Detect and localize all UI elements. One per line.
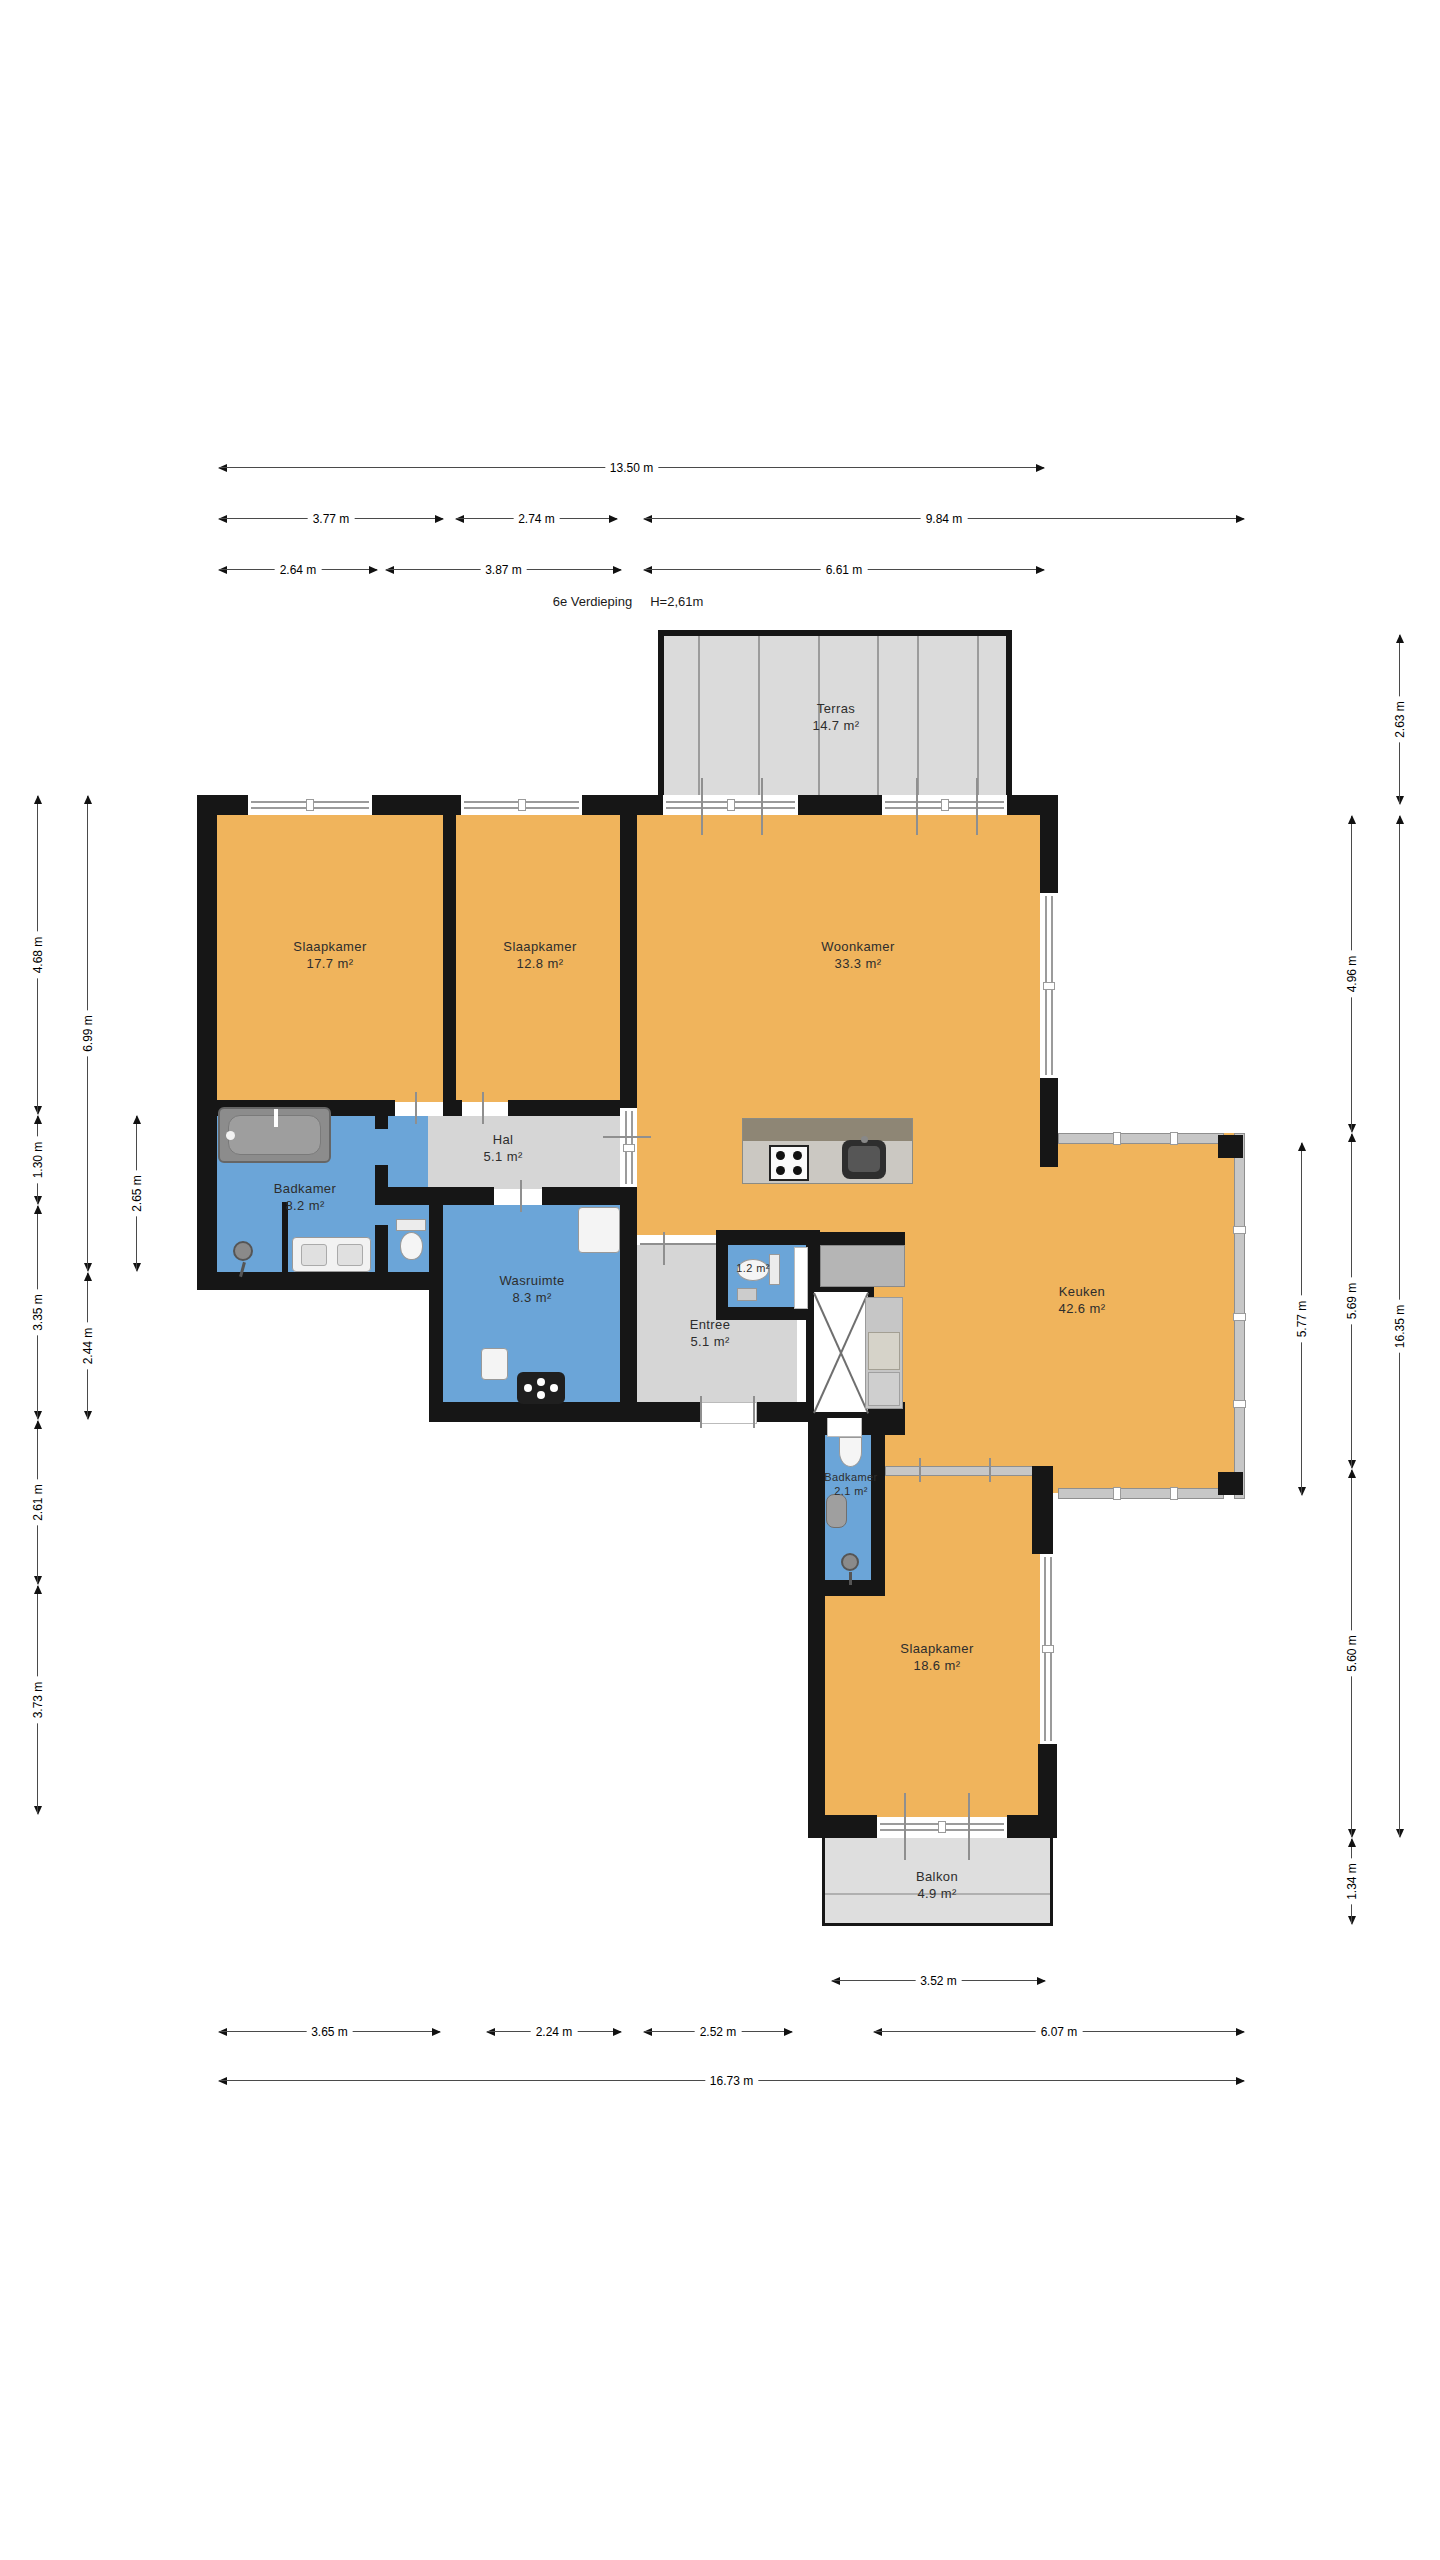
- arrowhead: [1348, 1469, 1356, 1478]
- wall: [375, 1115, 388, 1129]
- room-label-badkamer-2: Badkamer2.1 m²: [801, 1470, 901, 1498]
- dimension-line-24: 5.60 m: [1345, 1469, 1359, 1838]
- arrowhead: [613, 2028, 622, 2036]
- dimension-line-22: 4.96 m: [1345, 815, 1359, 1133]
- door-swing-tick: [603, 1136, 651, 1138]
- dimension-value: 16.35 m: [1393, 1300, 1407, 1353]
- dimension-value: 2.44 m: [81, 1323, 95, 1370]
- dimension-value: 3.35 m: [31, 1289, 45, 1336]
- wall: [1218, 1135, 1243, 1158]
- dimension-line-20: 2.65 m: [130, 1115, 144, 1272]
- arrowhead: [34, 1576, 42, 1585]
- arrowhead: [1037, 1977, 1046, 1985]
- arrowhead: [1348, 1460, 1356, 1469]
- dimension-line-11: 6.07 m: [873, 2025, 1245, 2039]
- arrowhead: [34, 1585, 42, 1594]
- dimension-value: 2.65 m: [130, 1170, 144, 1217]
- door-swing-tick: [976, 778, 978, 835]
- wall: [808, 1420, 827, 1435]
- arrowhead: [1396, 1829, 1404, 1838]
- dimension-line-12: 16.73 m: [218, 2074, 1245, 2088]
- wall: [443, 1100, 462, 1116]
- arrowhead: [1348, 1124, 1356, 1133]
- dimension-value: 2.74 m: [513, 512, 560, 526]
- burner: [776, 1151, 785, 1160]
- arrowhead: [34, 1205, 42, 1214]
- door-swing-tick: [919, 1458, 921, 1482]
- dimension-value: 2.61 m: [31, 1479, 45, 1526]
- dimension-value: 6.61 m: [821, 563, 868, 577]
- dimension-value: 2.52 m: [695, 2025, 742, 2039]
- arrowhead: [486, 2028, 495, 2036]
- washer-dial: [550, 1384, 558, 1392]
- arrowhead: [1236, 2077, 1245, 2085]
- dimension-value: 1.34 m: [1345, 1858, 1359, 1905]
- wall: [808, 1580, 885, 1596]
- arrowhead: [1348, 1916, 1356, 1925]
- wall: [808, 1815, 877, 1838]
- arrowhead: [643, 2028, 652, 2036]
- dimension-line-23: 5.69 m: [1345, 1133, 1359, 1469]
- room-label-slaapkamer-3: Slaapkamer18.6 m²: [877, 1640, 997, 1674]
- arrowhead: [1236, 2028, 1245, 2036]
- arrowhead: [218, 515, 227, 523]
- window-icon: [248, 795, 372, 815]
- dimension-line-26: 5.77 m: [1295, 1142, 1309, 1496]
- door-opening: [700, 1402, 757, 1424]
- arrowhead: [84, 795, 92, 804]
- glass-mullion: [1170, 1487, 1178, 1500]
- dimension-value: 2.63 m: [1393, 696, 1407, 743]
- wall: [429, 1205, 443, 1420]
- dimension-line-3: 9.84 m: [643, 512, 1245, 526]
- bathtub-icon: [218, 1107, 331, 1163]
- toilet-icon: [396, 1219, 426, 1231]
- door-swing-tick: [700, 1396, 702, 1428]
- dimension-line-0: 13.50 m: [218, 461, 1045, 475]
- door-opening: [794, 1247, 808, 1309]
- dimension-line-16: 2.61 m: [31, 1420, 45, 1585]
- wall: [1032, 1466, 1053, 1554]
- wall: [806, 1232, 905, 1245]
- floorplan-title: 6e Verdieping H=2,61m: [438, 594, 818, 609]
- window-icon: [1040, 1554, 1056, 1744]
- glass-mullion: [1170, 1132, 1178, 1145]
- glass-mullion: [1113, 1487, 1121, 1500]
- wall: [716, 1230, 810, 1245]
- arrowhead: [455, 515, 464, 523]
- sink-icon: [737, 1288, 757, 1301]
- dimension-line-19: 2.44 m: [81, 1272, 95, 1420]
- dimension-line-9: 2.24 m: [486, 2025, 622, 2039]
- room-label-keuken: Keuken42.6 m²: [1022, 1283, 1142, 1317]
- arrowhead: [432, 2028, 441, 2036]
- toilet-bowl: [400, 1232, 423, 1260]
- arrowhead: [1236, 515, 1245, 523]
- door-swing-tick: [701, 778, 703, 835]
- wall: [1040, 815, 1058, 895]
- wall: [1007, 795, 1058, 815]
- glass-wall: [885, 1466, 1034, 1476]
- sink-basin: [337, 1244, 363, 1266]
- arrowhead: [34, 1420, 42, 1429]
- wall: [1040, 1078, 1058, 1167]
- dimension-line-6: 6.61 m: [643, 563, 1045, 577]
- arrowhead: [34, 1106, 42, 1115]
- arrowhead: [34, 795, 42, 804]
- dimension-line-21: 2.63 m: [1393, 634, 1407, 805]
- dimension-value: 3.52 m: [915, 1974, 962, 1988]
- arrowhead: [84, 1263, 92, 1272]
- wall: [1218, 1472, 1243, 1495]
- wall: [798, 795, 882, 815]
- glass-mullion: [1233, 1400, 1246, 1408]
- arrowhead: [1348, 1133, 1356, 1142]
- dimension-value: 6.07 m: [1036, 2025, 1083, 2039]
- terras-divider: [917, 636, 919, 801]
- dimension-line-25: 1.34 m: [1345, 1838, 1359, 1925]
- washer-dial: [537, 1378, 545, 1386]
- ceiling-height-label: H=2,61m: [650, 594, 703, 609]
- wall: [375, 1225, 388, 1272]
- arrowhead: [1396, 796, 1404, 805]
- window-icon: [1040, 893, 1058, 1078]
- glass-mullion: [1233, 1226, 1246, 1234]
- arrowhead: [218, 2077, 227, 2085]
- arrowhead: [613, 566, 622, 574]
- arrowhead: [435, 515, 444, 523]
- terras-divider: [977, 636, 979, 801]
- kitchen-counter: [820, 1245, 905, 1287]
- dimension-line-15: 3.35 m: [31, 1205, 45, 1420]
- cabinet-icon: [578, 1207, 620, 1253]
- room-label-slaapkamer-2: Slaapkamer12.8 m²: [480, 938, 600, 972]
- door-swing-tick: [482, 1092, 484, 1124]
- arrowhead: [1348, 1838, 1356, 1847]
- arrowhead: [643, 515, 652, 523]
- arrowhead: [1348, 1829, 1356, 1838]
- door-swing-tick: [640, 1243, 716, 1245]
- door-swing-tick: [916, 778, 918, 835]
- arrowhead: [218, 2028, 227, 2036]
- wall: [375, 1165, 388, 1187]
- arrowhead: [34, 1115, 42, 1124]
- room-slaapkamer-3: [825, 1588, 1053, 1817]
- sink-basin: [848, 1146, 880, 1172]
- room-label-balkon: Balkon4.9 m²: [877, 1868, 997, 1902]
- kitchen-sink-icon: [842, 1140, 886, 1179]
- kitchen-island: [742, 1118, 913, 1184]
- terras-divider: [758, 636, 760, 801]
- dimension-line-13: 4.68 m: [31, 795, 45, 1115]
- room-label-badkamer-1: Badkamer8.2 m²: [245, 1180, 365, 1214]
- dimension-value: 3.73 m: [31, 1677, 45, 1724]
- arrowhead: [218, 464, 227, 472]
- wall: [429, 1402, 700, 1422]
- dimension-line-4: 2.64 m: [218, 563, 378, 577]
- dimension-value: 9.84 m: [921, 512, 968, 526]
- floor-label: 6e Verdieping: [553, 594, 633, 609]
- window-icon: [877, 1817, 1007, 1836]
- door-swing-tick: [761, 778, 763, 835]
- cabinet-icon: [481, 1348, 508, 1380]
- arrowhead: [784, 2028, 793, 2036]
- door-swing-tick: [663, 1232, 665, 1265]
- door-swing-tick: [520, 1180, 522, 1212]
- glass-mullion: [1233, 1313, 1246, 1321]
- wall: [375, 1187, 494, 1205]
- floorplan-canvas: 6e Verdieping H=2,61m: [0, 0, 1440, 2560]
- burner: [776, 1166, 785, 1175]
- room-label-slaapkamer-1: Slaapkamer17.7 m²: [270, 938, 390, 972]
- arrowhead: [1396, 815, 1404, 824]
- arrowhead: [1036, 566, 1045, 574]
- door-swing-tick: [753, 1396, 755, 1428]
- arrowhead: [609, 515, 618, 523]
- appliance-icon: [868, 1372, 900, 1406]
- terras-divider: [698, 636, 700, 801]
- faucet: [861, 1136, 868, 1143]
- glass-wall: [1058, 1488, 1224, 1499]
- room-label-wasruimte: Wasruimte8.3 m²: [472, 1272, 592, 1306]
- wall: [197, 795, 217, 1290]
- dimension-line-5: 3.87 m: [385, 563, 622, 577]
- arrowhead: [133, 1115, 141, 1124]
- arrowhead: [34, 1411, 42, 1420]
- arrowhead: [873, 2028, 882, 2036]
- shower-icon: [233, 1241, 253, 1261]
- window-icon: [663, 795, 798, 815]
- room-label-entree: Entree5.1 m²: [650, 1316, 770, 1350]
- room-label-toilet: 1.2 m²: [713, 1261, 793, 1275]
- bath-handle: [274, 1109, 278, 1127]
- dimension-value: 4.68 m: [31, 932, 45, 979]
- wall: [620, 795, 637, 1108]
- dimension-value: 5.69 m: [1345, 1278, 1359, 1325]
- glass-wall: [1058, 1133, 1224, 1144]
- toilet-icon: [839, 1437, 862, 1467]
- arrowhead: [34, 1806, 42, 1815]
- window-icon: [882, 795, 1007, 815]
- dimension-value: 13.50 m: [605, 461, 658, 475]
- arrowhead: [385, 566, 394, 574]
- glass-mullion: [1113, 1132, 1121, 1145]
- sink-icon: [826, 1494, 847, 1528]
- arrowhead: [1298, 1487, 1306, 1496]
- shower-arm: [849, 1572, 852, 1585]
- wall: [542, 1187, 620, 1205]
- arrowhead: [84, 1272, 92, 1281]
- dimension-line-27: 16.35 m: [1393, 815, 1407, 1838]
- dimension-line-8: 3.65 m: [218, 2025, 441, 2039]
- dimension-value: 3.77 m: [308, 512, 355, 526]
- dimension-value: 2.24 m: [531, 2025, 578, 2039]
- dimension-value: 3.87 m: [480, 563, 527, 577]
- vanity-double-sink-icon: [292, 1237, 371, 1272]
- wall: [508, 1100, 637, 1116]
- dimension-value: 5.77 m: [1295, 1296, 1309, 1343]
- arrowhead: [34, 1196, 42, 1205]
- arrowhead: [1036, 464, 1045, 472]
- burner: [793, 1151, 802, 1160]
- dimension-line-10: 2.52 m: [643, 2025, 793, 2039]
- window-icon: [620, 1108, 637, 1187]
- wall: [1007, 1815, 1057, 1838]
- door-swing-tick: [415, 1092, 417, 1124]
- room-label-hal: Hal5.1 m²: [443, 1131, 563, 1165]
- dimension-line-2: 2.74 m: [455, 512, 618, 526]
- arrowhead: [831, 1977, 840, 1985]
- wall: [197, 1272, 443, 1290]
- wall: [871, 1420, 885, 1585]
- arrowhead: [369, 566, 378, 574]
- dimension-value: 16.73 m: [705, 2074, 758, 2088]
- dimension-line-1: 3.77 m: [218, 512, 444, 526]
- window-icon: [461, 795, 582, 815]
- door-swing-tick: [968, 1793, 970, 1860]
- arrowhead: [84, 1411, 92, 1420]
- washer-dial: [537, 1391, 545, 1399]
- dimension-value: 3.65 m: [306, 2025, 353, 2039]
- wall: [620, 1187, 637, 1422]
- arrowhead: [1298, 1142, 1306, 1151]
- dimension-line-7: 3.52 m: [831, 1974, 1046, 1988]
- arrowhead: [1396, 634, 1404, 643]
- shower-icon: [841, 1553, 859, 1571]
- dimension-value: 2.64 m: [275, 563, 322, 577]
- dimension-value: 6.99 m: [81, 1010, 95, 1057]
- washing-machine-icon: [517, 1372, 565, 1404]
- wall: [372, 795, 461, 815]
- room-slaapkamer-3: [885, 1468, 1053, 1590]
- wall: [443, 815, 456, 1105]
- washer-dial: [524, 1384, 532, 1392]
- dimension-line-17: 3.73 m: [31, 1585, 45, 1815]
- island-counter-edge: [743, 1119, 912, 1141]
- burner: [793, 1166, 802, 1175]
- arrowhead: [1348, 815, 1356, 824]
- room-label-woonkamer: Woonkamer33.3 m²: [798, 938, 918, 972]
- sink-basin: [301, 1244, 327, 1266]
- arrowhead: [218, 566, 227, 574]
- dimension-value: 5.60 m: [1345, 1630, 1359, 1677]
- room-label-terras: Terras14.7 m²: [776, 700, 896, 734]
- door-swing-tick: [989, 1458, 991, 1482]
- arrowhead: [133, 1263, 141, 1272]
- kitchen-counter: [865, 1297, 903, 1409]
- dimension-line-18: 6.99 m: [81, 795, 95, 1272]
- arrowhead: [643, 566, 652, 574]
- dimension-value: 4.96 m: [1345, 951, 1359, 998]
- door-swing-tick: [904, 1793, 906, 1860]
- dimension-value: 1.30 m: [31, 1137, 45, 1184]
- dimension-line-14: 1.30 m: [31, 1115, 45, 1205]
- cooktop-icon: [769, 1145, 809, 1181]
- appliance-icon: [868, 1332, 900, 1370]
- bath-faucet: [226, 1131, 235, 1140]
